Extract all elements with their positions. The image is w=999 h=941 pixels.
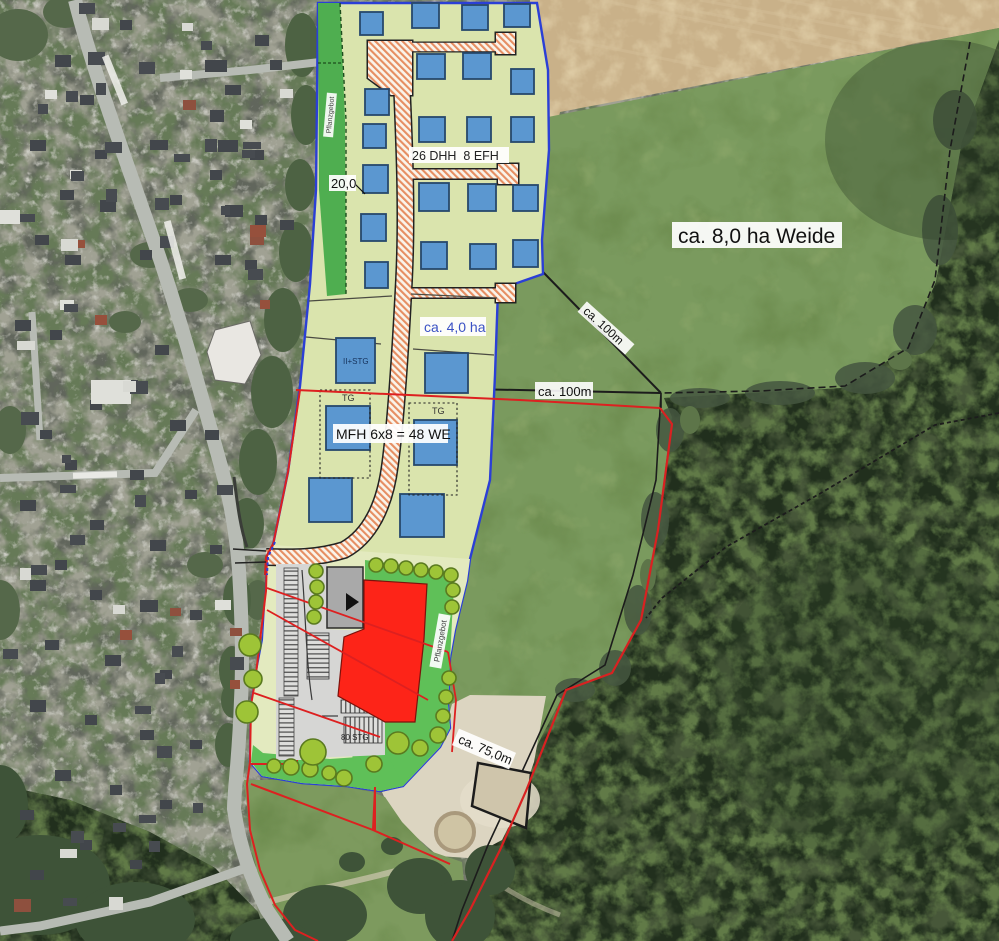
svg-text:ca. 8,0 ha Weide: ca. 8,0 ha Weide: [678, 225, 835, 248]
svg-text:26 DHH 8 EFH: 26 DHH 8 EFH: [412, 149, 499, 163]
svg-text:ca. 100m: ca. 100m: [538, 384, 591, 399]
svg-text:ca. 4,0 ha: ca. 4,0 ha: [424, 319, 486, 335]
svg-text:80 STG: 80 STG: [341, 733, 369, 742]
svg-text:MFH 6x8 = 48 WE: MFH 6x8 = 48 WE: [336, 426, 451, 442]
svg-text:II+STG: II+STG: [343, 357, 369, 366]
svg-text:TG: TG: [432, 406, 445, 416]
svg-text:TG: TG: [342, 393, 355, 403]
svg-text:20,0: 20,0: [331, 176, 356, 191]
